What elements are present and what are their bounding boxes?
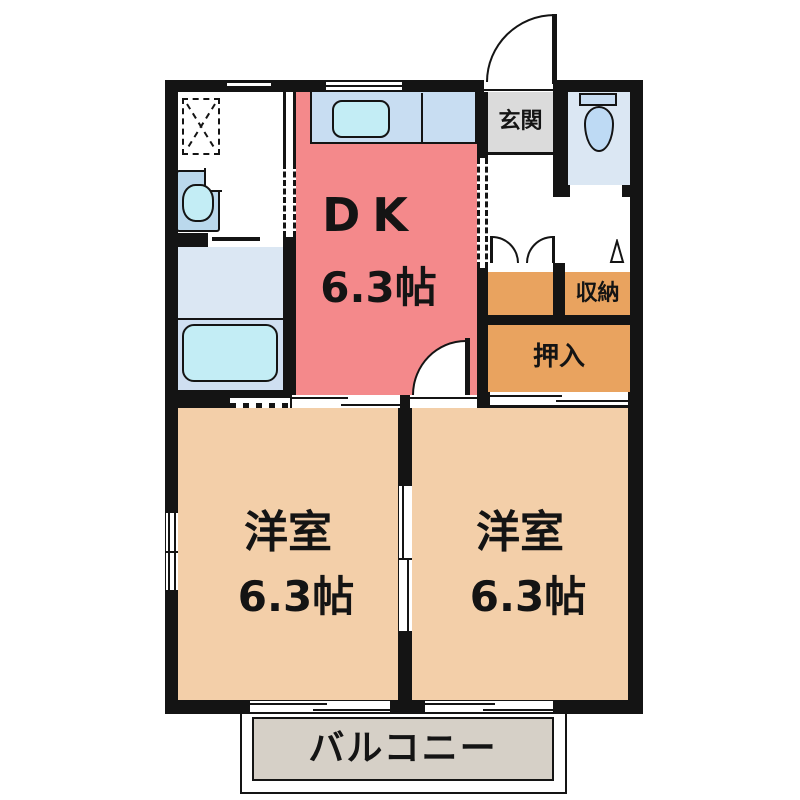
balcony-deck: バルコニー — [252, 717, 554, 781]
entry-door-leaf — [552, 14, 557, 84]
hall-closet — [488, 272, 553, 315]
balcony: バルコニー — [240, 712, 567, 794]
western-room-left-label: 洋室 — [178, 496, 398, 548]
window-top-left — [227, 81, 271, 90]
kitchen-sink — [332, 100, 390, 138]
storage-closet: 収納 — [565, 272, 630, 315]
entry-door-swing — [486, 14, 555, 82]
futon-closet-label: 押入 — [488, 325, 630, 389]
entrance-hall: 玄関 — [488, 92, 553, 155]
washing-machine-pan — [182, 98, 220, 155]
window-left-wall — [166, 513, 178, 590]
western-room-right-size: 6.3帖 — [416, 563, 640, 615]
kitchen-counter-divider — [421, 93, 423, 142]
washing-machine-pan-x-icon — [184, 100, 218, 153]
dk-hall-opening — [477, 158, 488, 268]
closet-threshold-left — [488, 263, 553, 272]
western-room-right-label: 洋室 — [412, 496, 628, 548]
balcony-label: バルコニー — [254, 719, 552, 779]
futon-closet-sliding-door — [490, 392, 628, 405]
washbasin-bowl — [182, 184, 214, 222]
window-top-kitchen — [326, 80, 402, 92]
storage-door-right-leaf — [552, 236, 555, 263]
western-room-left-size: 6.3帖 — [182, 563, 410, 615]
dk-left-room-sliding-door — [292, 395, 400, 408]
storage-door-left-leaf — [490, 236, 493, 263]
floor-plan: DK 6.3帖 玄関 収納 押入 — [0, 0, 800, 800]
bathroom-louver-window — [230, 396, 290, 408]
storage-label: 収納 — [565, 272, 630, 315]
dk-room-label: DK — [286, 188, 456, 240]
dk-right-room-threshold — [410, 395, 477, 408]
door-stop-icon — [606, 239, 628, 264]
bathroom-door-panel — [212, 237, 260, 241]
rooms-divider-sliding-door — [399, 486, 412, 631]
toilet-tank — [579, 93, 617, 106]
dk-room-size: 6.3帖 — [286, 254, 471, 306]
futon-closet: 押入 — [488, 325, 630, 392]
entrance-label: 玄関 — [488, 92, 553, 152]
bathtub — [182, 324, 278, 382]
dk-door-leaf — [465, 338, 470, 395]
closet-threshold-right — [565, 263, 630, 272]
bathroom-floor — [178, 247, 283, 318]
kitchen-side-wall — [283, 92, 296, 163]
toilet-door-opening — [570, 185, 622, 197]
